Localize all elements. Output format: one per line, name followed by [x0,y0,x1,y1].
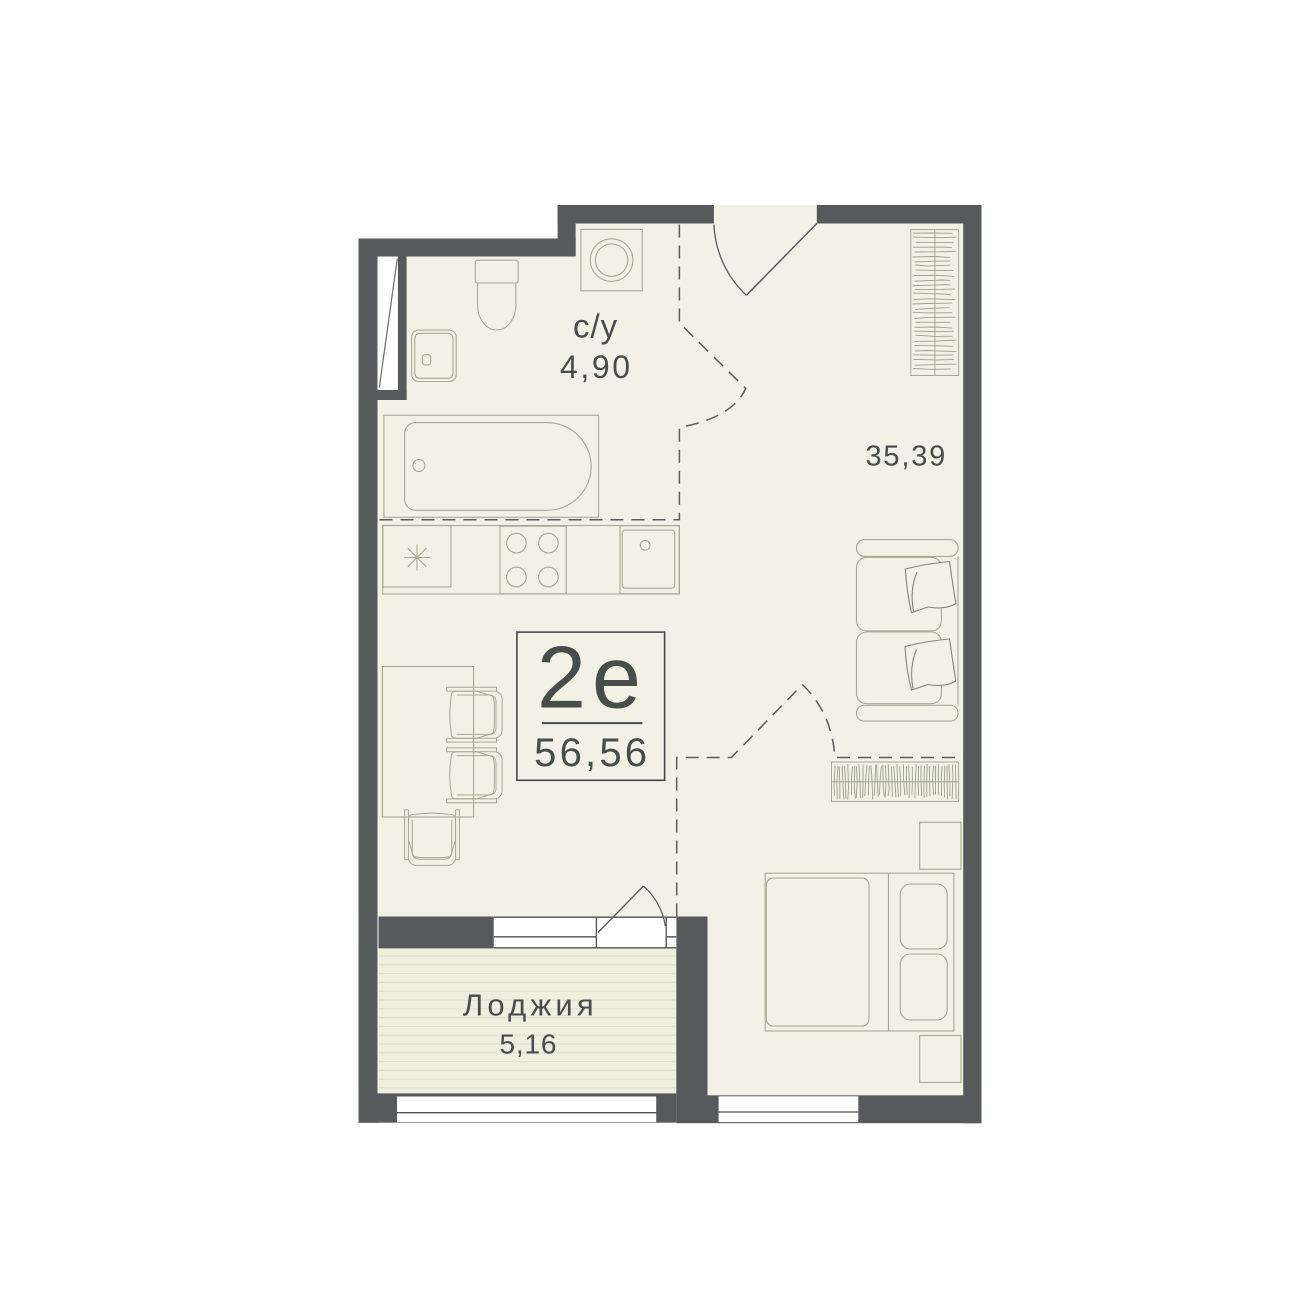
svg-text:4,90: 4,90 [560,349,633,385]
svg-text:2е: 2е [537,628,647,727]
svg-text:Лоджия: Лоджия [463,987,598,1022]
svg-text:5,16: 5,16 [500,1029,558,1060]
svg-text:с/у: с/у [573,308,618,345]
svg-text:56,56: 56,56 [534,731,650,775]
svg-text:35,39: 35,39 [866,441,948,473]
